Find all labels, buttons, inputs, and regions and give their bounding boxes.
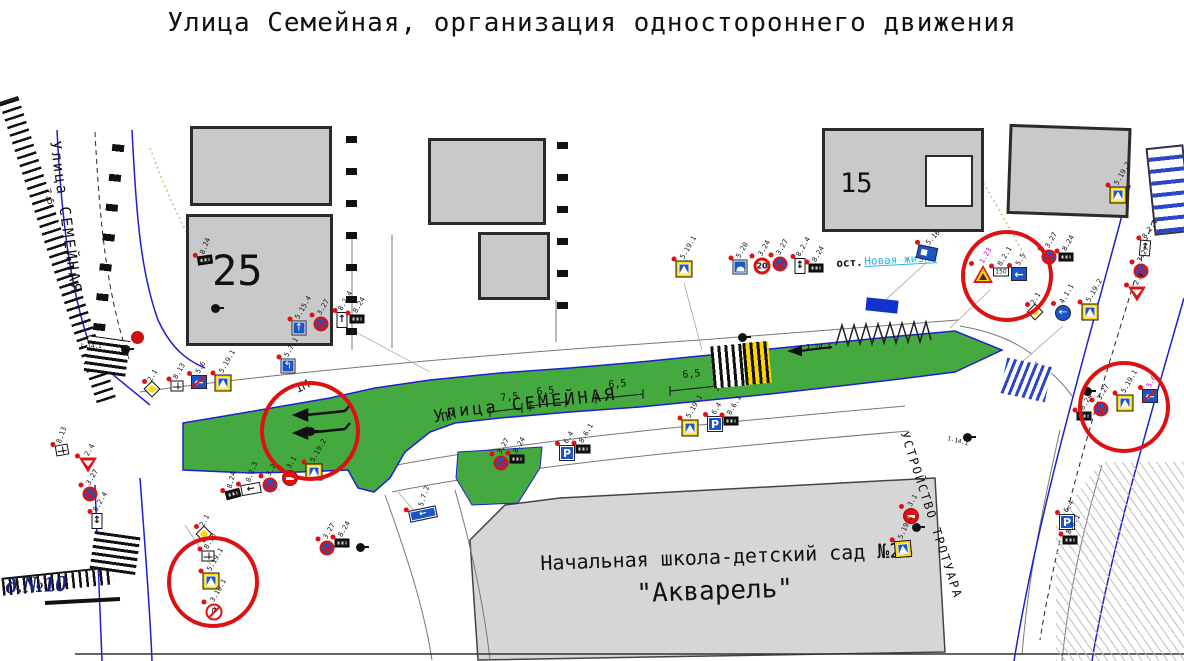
highlight-circle: [961, 230, 1053, 322]
highlight-circle: [260, 381, 360, 481]
traffic-scheme: Улица Семейная, организация односторонне…: [0, 0, 1184, 661]
circles-layer: [0, 0, 1184, 661]
highlight-circle: [1078, 361, 1170, 453]
highlight-circle: [167, 536, 259, 628]
drawing-title: Улица Семейная, организация односторонне…: [0, 8, 1184, 38]
